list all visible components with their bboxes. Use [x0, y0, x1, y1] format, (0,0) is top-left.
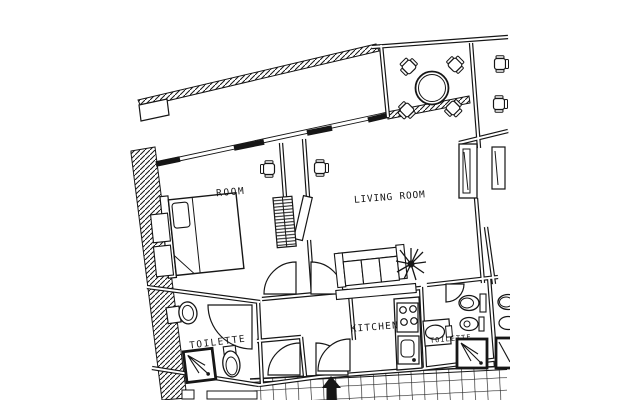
toilet	[459, 294, 486, 312]
shower-cabin	[457, 339, 487, 368]
bedroom-furniture	[151, 189, 245, 278]
neighbor-window-panel	[492, 147, 505, 189]
exterior-steps	[182, 390, 257, 399]
kitchen-fittings	[394, 297, 422, 370]
sofa-cushion	[343, 260, 363, 286]
round-dining-table	[416, 72, 449, 105]
wardrobe-shelf	[273, 196, 296, 247]
sofa-cushion	[361, 258, 381, 284]
nightstand	[151, 213, 171, 243]
bidet	[460, 317, 484, 331]
floor-plan-canvas: ROOM LIVING ROOM KITCHEN TOILETTE TOILET…	[0, 0, 640, 400]
kitchen-sink	[398, 336, 419, 364]
stove-cooktop	[397, 303, 418, 332]
shower-cabin	[183, 348, 216, 382]
pillow	[172, 202, 191, 229]
floor-plan-page: ROOM LIVING ROOM KITCHEN TOILETTE TOILET…	[0, 0, 640, 400]
nightstand	[153, 245, 173, 277]
sofa-cushion	[379, 256, 399, 282]
